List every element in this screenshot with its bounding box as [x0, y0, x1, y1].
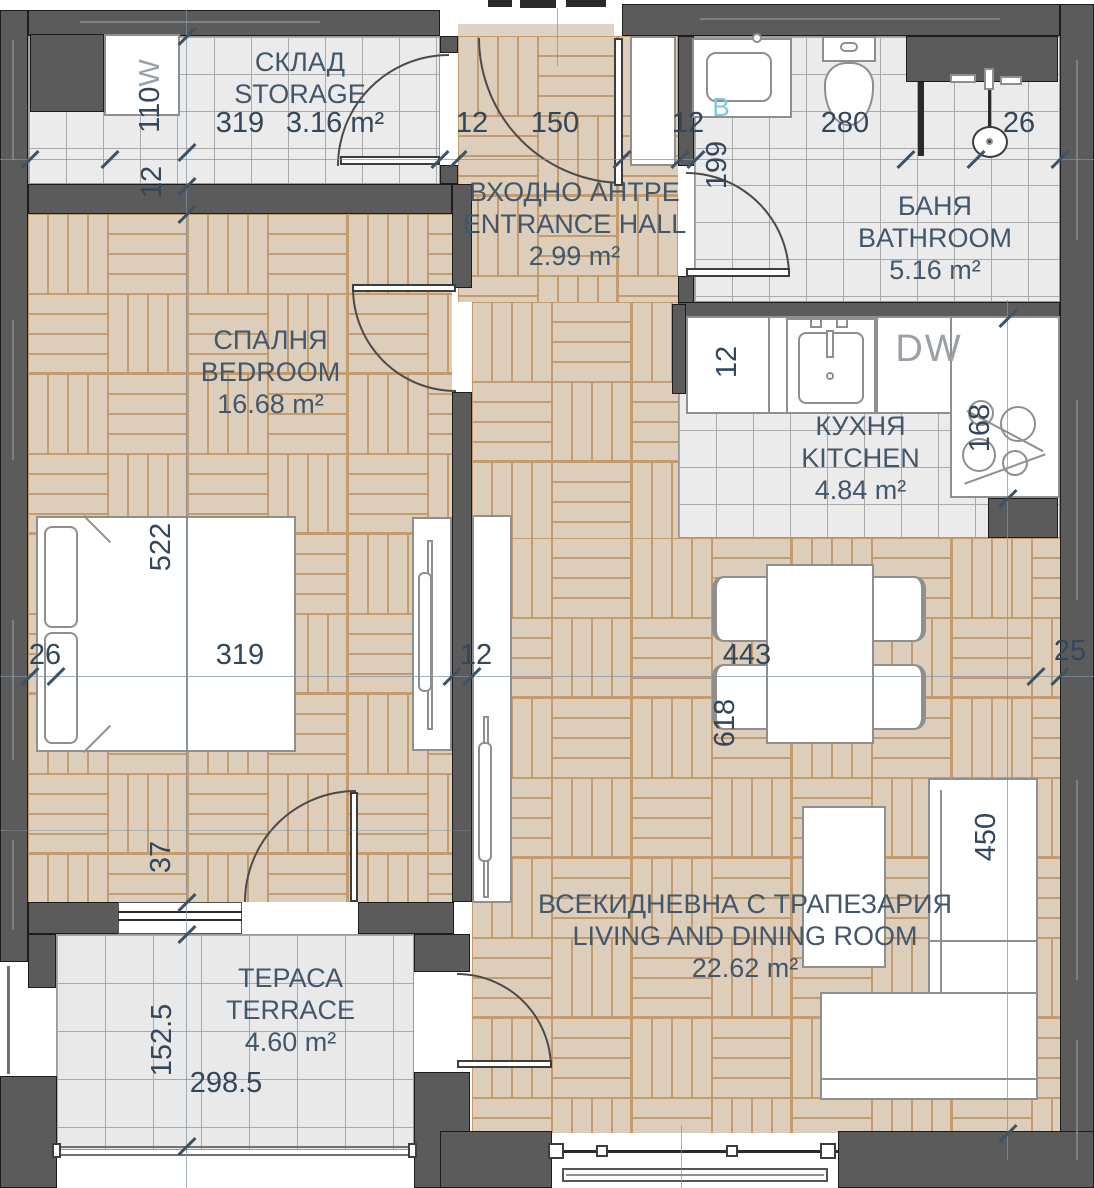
- dim-value: 110: [134, 87, 166, 133]
- bathroom-door-leaf: [686, 268, 790, 277]
- dimension-line-vertical-right: [1007, 300, 1008, 1160]
- kitchen-drain-dot: [826, 372, 834, 380]
- wall-joint-line: [12, 40, 14, 160]
- wall-kitchen-stub: [672, 304, 686, 394]
- storage-door-leaf: [340, 156, 440, 165]
- dim-label-25: 25: [1048, 636, 1092, 666]
- wall-bath-left-lower: [678, 276, 694, 304]
- wall-joint-line: [12, 840, 14, 930]
- dim-label-26-bed: 26: [20, 640, 70, 670]
- wall-terrace-right-upper: [414, 934, 470, 972]
- dim-label-319-storage: 319: [205, 108, 275, 138]
- wall-joint-line: [700, 18, 1000, 20]
- entrance-label: ВХОДНО АНТРЕ ENTRANCE HALL 2.99 m²: [452, 176, 697, 272]
- bathroom-area: 5.16 m²: [810, 254, 1060, 286]
- terrace-railing-line: [56, 1154, 414, 1156]
- bedroom-tv-bracket: [418, 572, 432, 692]
- boiler-mark-label: B: [706, 92, 736, 122]
- wall-bedroom-bottom-left: [28, 902, 120, 934]
- corridor-floor-parquet: [472, 302, 678, 538]
- wall-joint-line: [1076, 400, 1078, 600]
- living-window-mullion: [596, 1145, 608, 1157]
- storage-name-en: STORAGE: [200, 78, 400, 110]
- wall-living-bottom-left: [440, 1131, 552, 1188]
- sofa-seat-line: [820, 1078, 1038, 1080]
- bedroom-door-leaf: [352, 284, 456, 292]
- cutoff-text-remnant: [566, 0, 606, 7]
- wall-terrace-left-pier: [28, 934, 56, 988]
- dim-label-110: 110W: [135, 51, 165, 141]
- floor-plan: 110W 12 319 3.16 m² 12 150 12 280 26 199…: [0, 0, 1094, 1188]
- living-name-bg: ВСЕКИДНЕВНА С ТРАПЕЗАРИЯ: [510, 888, 980, 920]
- living-window-mullion: [548, 1143, 564, 1159]
- terrace-railing-post: [52, 1143, 61, 1158]
- entrance-threshold: [458, 24, 614, 36]
- wall-bath-shaft: [906, 36, 1058, 82]
- terrace-side-railing: [7, 966, 10, 1074]
- dim-label-280: 280: [810, 108, 880, 138]
- dimension-line-bedroom: [0, 830, 470, 831]
- dim-label-152-5: 152.5: [147, 995, 177, 1085]
- living-terrace-door-leaf: [457, 1060, 552, 1068]
- terrace-label: ТЕРАСА TERRACE 4.60 m²: [178, 962, 403, 1058]
- bathroom-name-en: BATHROOM: [810, 222, 1060, 254]
- dim-label-12-mid: 12: [456, 640, 496, 670]
- dim-label-319-bed: 319: [205, 640, 275, 670]
- dim-label-450: 450: [971, 792, 1001, 882]
- sofa-chaise-section: [820, 992, 1038, 1100]
- entrance-name-bg: ВХОДНО АНТРЕ: [452, 176, 697, 208]
- living-window-glass-line: [552, 1150, 838, 1153]
- kitchen-faucet-icon: [836, 318, 848, 328]
- terrace-railing-line: [56, 1146, 414, 1148]
- living-tv-bracket: [478, 742, 492, 862]
- wall-joint-line: [12, 620, 14, 760]
- wall-joint-line: [12, 320, 14, 460]
- bedroom-terrace-door-leaf: [350, 792, 358, 902]
- hall-closet-shaft: [630, 36, 676, 166]
- bathroom-label: БАНЯ BATHROOM 5.16 m²: [810, 190, 1060, 286]
- bedroom-area: 16.68 m²: [158, 388, 383, 420]
- terrace-area: 4.60 m²: [178, 1026, 403, 1058]
- kitchen-label: КУХНЯ KITCHEN 4.84 m²: [748, 410, 973, 506]
- kitchen-area: 4.84 m²: [748, 474, 973, 506]
- living-name-en: LIVING AND DINING ROOM: [510, 920, 980, 952]
- kitchen-counter-divider: [768, 318, 770, 412]
- dining-table: [766, 564, 874, 744]
- shower-head-dot: [986, 138, 993, 145]
- kitchen-faucet-icon: [810, 318, 822, 328]
- entrance-name-en: ENTRANCE HALL: [452, 208, 697, 240]
- dim-label-618: 618: [710, 678, 740, 768]
- cutoff-text-remnant: [488, 0, 512, 7]
- kitchen-counter-divider: [876, 318, 878, 412]
- dim-label-298-5: 298.5: [176, 1068, 276, 1098]
- kitchen-name-en: KITCHEN: [748, 442, 973, 474]
- storage-label: СКЛАД STORAGE: [200, 46, 400, 110]
- wall-bedroom-bottom-right: [358, 902, 454, 934]
- dim-label-199: 199: [702, 120, 732, 210]
- wall-joint-line: [1076, 60, 1078, 240]
- bedroom-name-en: BEDROOM: [158, 356, 383, 388]
- wall-living-bottom-right: [838, 1131, 1094, 1188]
- kitchen-name-bg: КУХНЯ: [748, 410, 973, 442]
- dishwasher-label: DW: [884, 334, 974, 364]
- dim-label-12-kitchen: 12: [712, 332, 742, 392]
- entrance-area: 2.99 m²: [452, 240, 697, 272]
- shower-valve-icon: [1000, 76, 1022, 85]
- toilet-flush-button: [840, 42, 858, 52]
- terrace-name-bg: ТЕРАСА: [178, 962, 403, 994]
- bedroom-name-bg: СПАЛНЯ: [158, 324, 383, 356]
- bathroom-name-bg: БАНЯ: [810, 190, 1060, 222]
- wall-storage-hall-upper: [440, 36, 458, 53]
- dim-label-37: 37: [146, 827, 176, 887]
- wall-top-right: [622, 4, 1060, 36]
- wall-storage-shaft: [30, 34, 104, 112]
- storage-name-bg: СКЛАД: [200, 46, 400, 78]
- bedroom-label: СПАЛНЯ BEDROOM 16.68 m²: [158, 324, 383, 420]
- dim-label-443: 443: [712, 640, 782, 670]
- shower-pipe: [988, 86, 991, 130]
- dim-label-26-bath: 26: [994, 108, 1044, 138]
- dim-label-150: 150: [520, 108, 590, 138]
- storage-area-label: 3.16 m²: [280, 108, 390, 138]
- dimension-line-bottom: [681, 1125, 682, 1188]
- wall-top-left: [28, 10, 440, 36]
- living-label: ВСЕКИДНЕВНА С ТРАПЕЗАРИЯ LIVING AND DINI…: [510, 888, 980, 984]
- terrace-name-en: TERRACE: [178, 994, 403, 1026]
- washer-mark-label: W: [134, 59, 166, 86]
- wall-joint-line: [1076, 780, 1078, 980]
- entrance-doorway-gap: [458, 10, 614, 24]
- shower-mixer-icon: [984, 68, 994, 90]
- living-window-mullion: [820, 1143, 836, 1159]
- dimension-line-entrance: [557, 8, 558, 66]
- shower-valve-icon: [950, 74, 976, 83]
- kitchen-faucet-stem: [826, 330, 834, 358]
- terrace-railing-post: [408, 1143, 417, 1158]
- dim-label-12-hall: 12: [452, 108, 492, 138]
- dim-label-522: 522: [146, 502, 176, 592]
- bed-pillow: [44, 526, 78, 628]
- shower-partition: [918, 82, 924, 156]
- dim-label-12-storage: 12: [137, 152, 167, 212]
- wall-left: [0, 10, 28, 962]
- cutoff-text-remnant: [520, 0, 556, 8]
- wall-terrace-corner: [0, 1076, 57, 1188]
- wall-joint-line: [1076, 1040, 1078, 1160]
- bedroom-window-glass-line: [118, 919, 242, 921]
- living-area: 22.62 m²: [510, 952, 980, 984]
- dimension-line-middle: [0, 676, 1094, 677]
- living-window-mullion: [726, 1145, 738, 1157]
- wall-joint-line: [80, 21, 320, 23]
- living-window-sash-line: [566, 1174, 824, 1176]
- bath-faucet-icon: [752, 33, 762, 43]
- wall-storage-bottom: [28, 184, 452, 214]
